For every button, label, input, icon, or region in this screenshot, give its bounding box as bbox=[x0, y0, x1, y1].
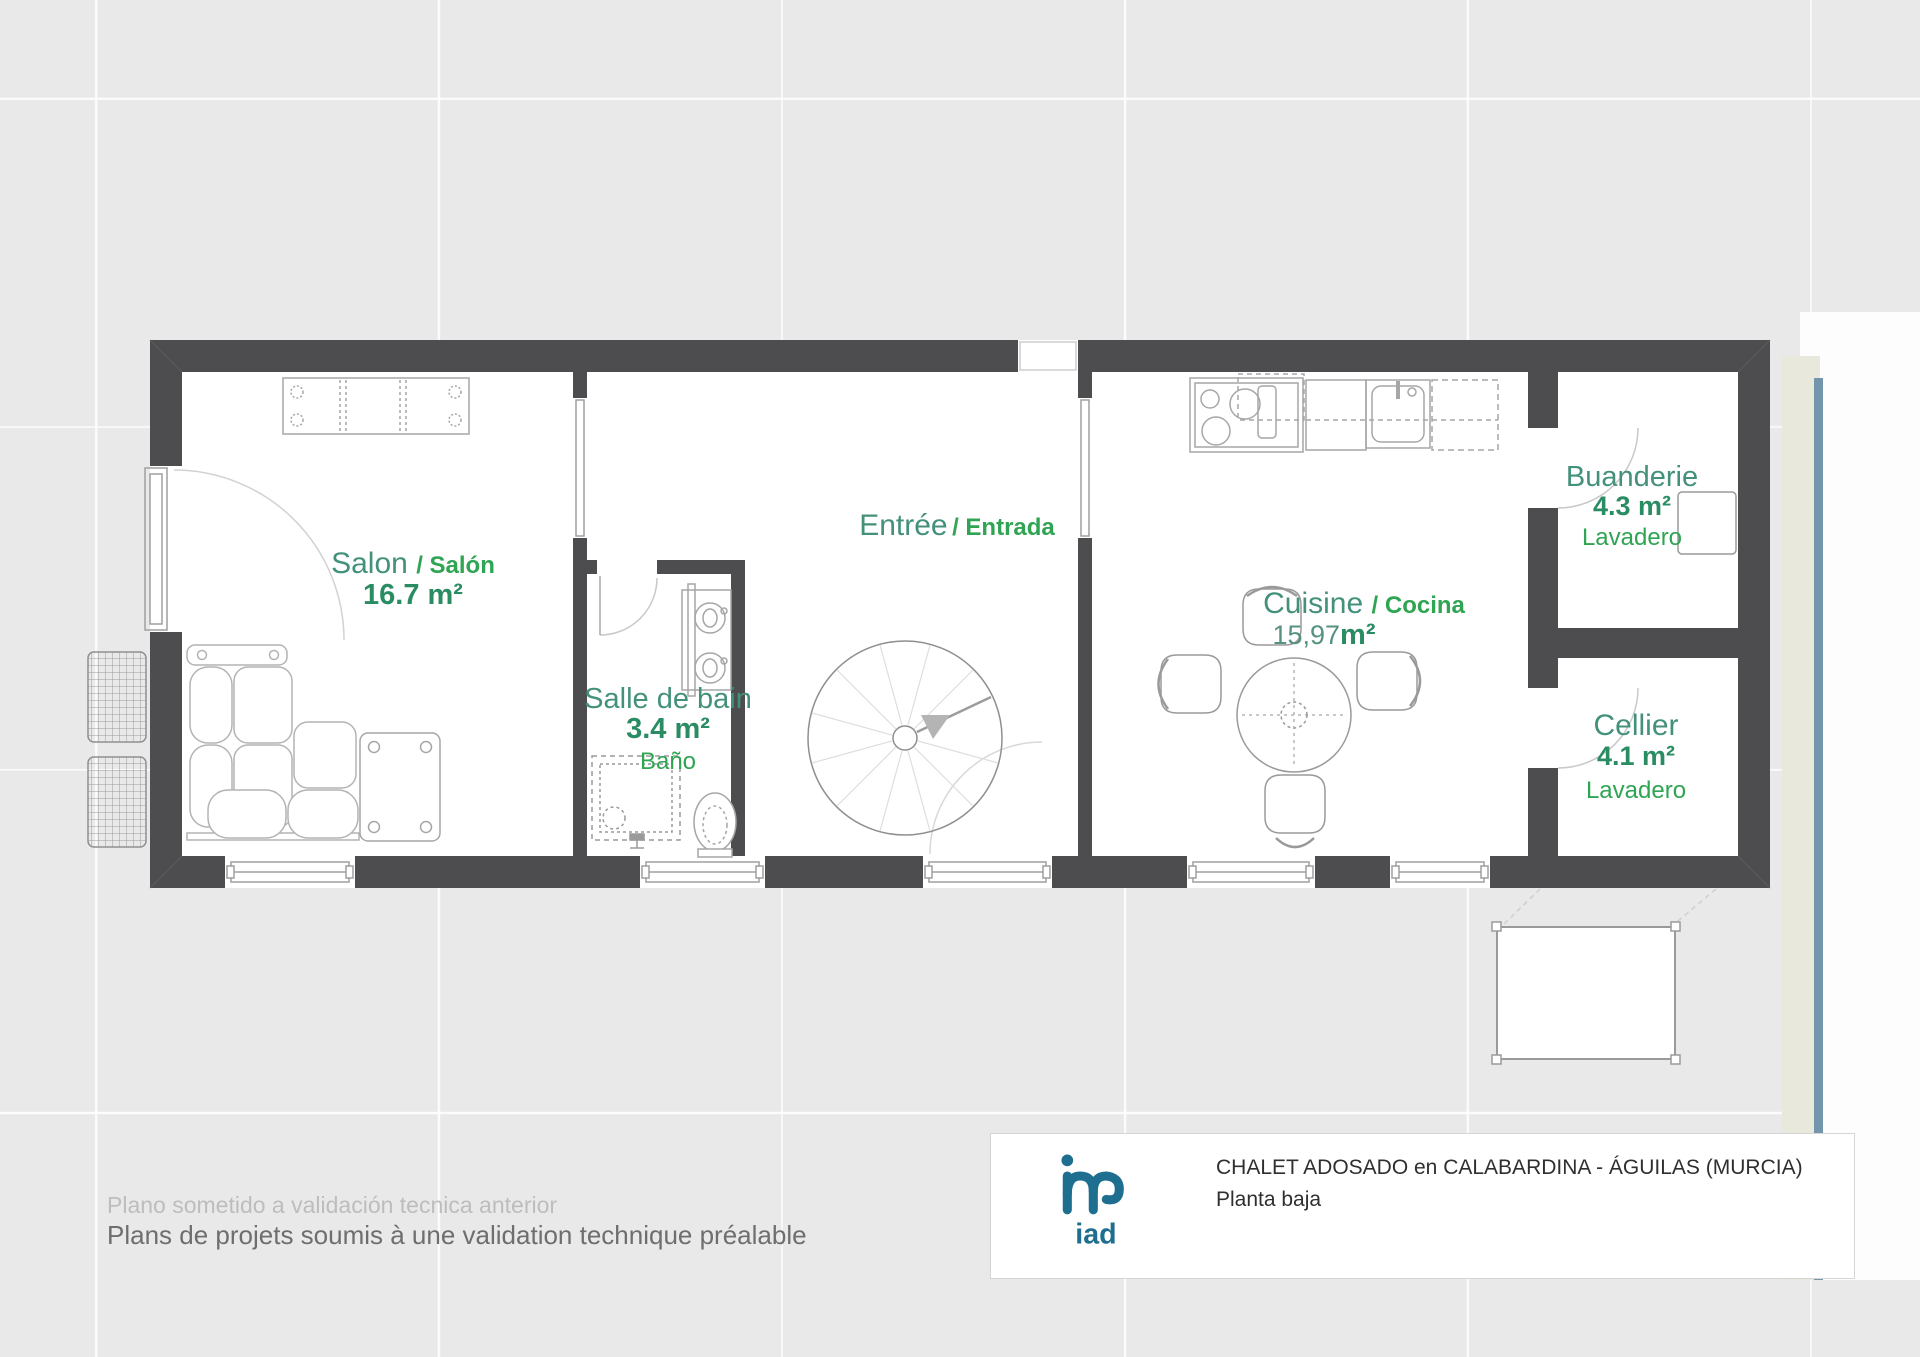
plan-interior bbox=[182, 372, 1738, 856]
terrace-table bbox=[1492, 889, 1716, 1064]
room-label-buanderie: Buanderie 4.3 m² Lavadero bbox=[1566, 462, 1698, 550]
room-label-cellier: Cellier 4.1 m² Lavadero bbox=[1586, 710, 1686, 803]
plan-title: CHALET ADOSADO en CALABARDINA - ÁGUILAS … bbox=[1216, 1156, 1803, 1180]
room-label-entree: Entrée / Entrada bbox=[859, 510, 1055, 542]
iad-logo-text: iad bbox=[1075, 1219, 1116, 1251]
room-label-cuisine: Cuisine / Cocina 15,97m² bbox=[1263, 588, 1465, 650]
outdoor-chairs bbox=[88, 652, 146, 847]
iad-logo: iad bbox=[1053, 1150, 1131, 1259]
title-block: iad CHALET ADOSADO en CALABARDINA - ÁGUI… bbox=[990, 1133, 1855, 1279]
iad-logo-icon bbox=[1061, 1155, 1119, 1210]
room-label-salon: Salon / Salón 16.7 m² bbox=[331, 548, 495, 610]
room-label-salle-de-bain: Salle de bain 3.4 m² Baño bbox=[573, 684, 763, 774]
floor-plan-page: { "colors": { "wall": "#4d4d4f", "backgr… bbox=[0, 0, 1920, 1357]
validation-notice-fr: Plans de projets soumis à une validation… bbox=[107, 1220, 807, 1251]
floor-plan bbox=[150, 340, 1770, 888]
validation-notice-es: Plano sometido a validación tecnica ante… bbox=[107, 1192, 557, 1219]
plan-subtitle: Planta baja bbox=[1216, 1188, 1321, 1212]
